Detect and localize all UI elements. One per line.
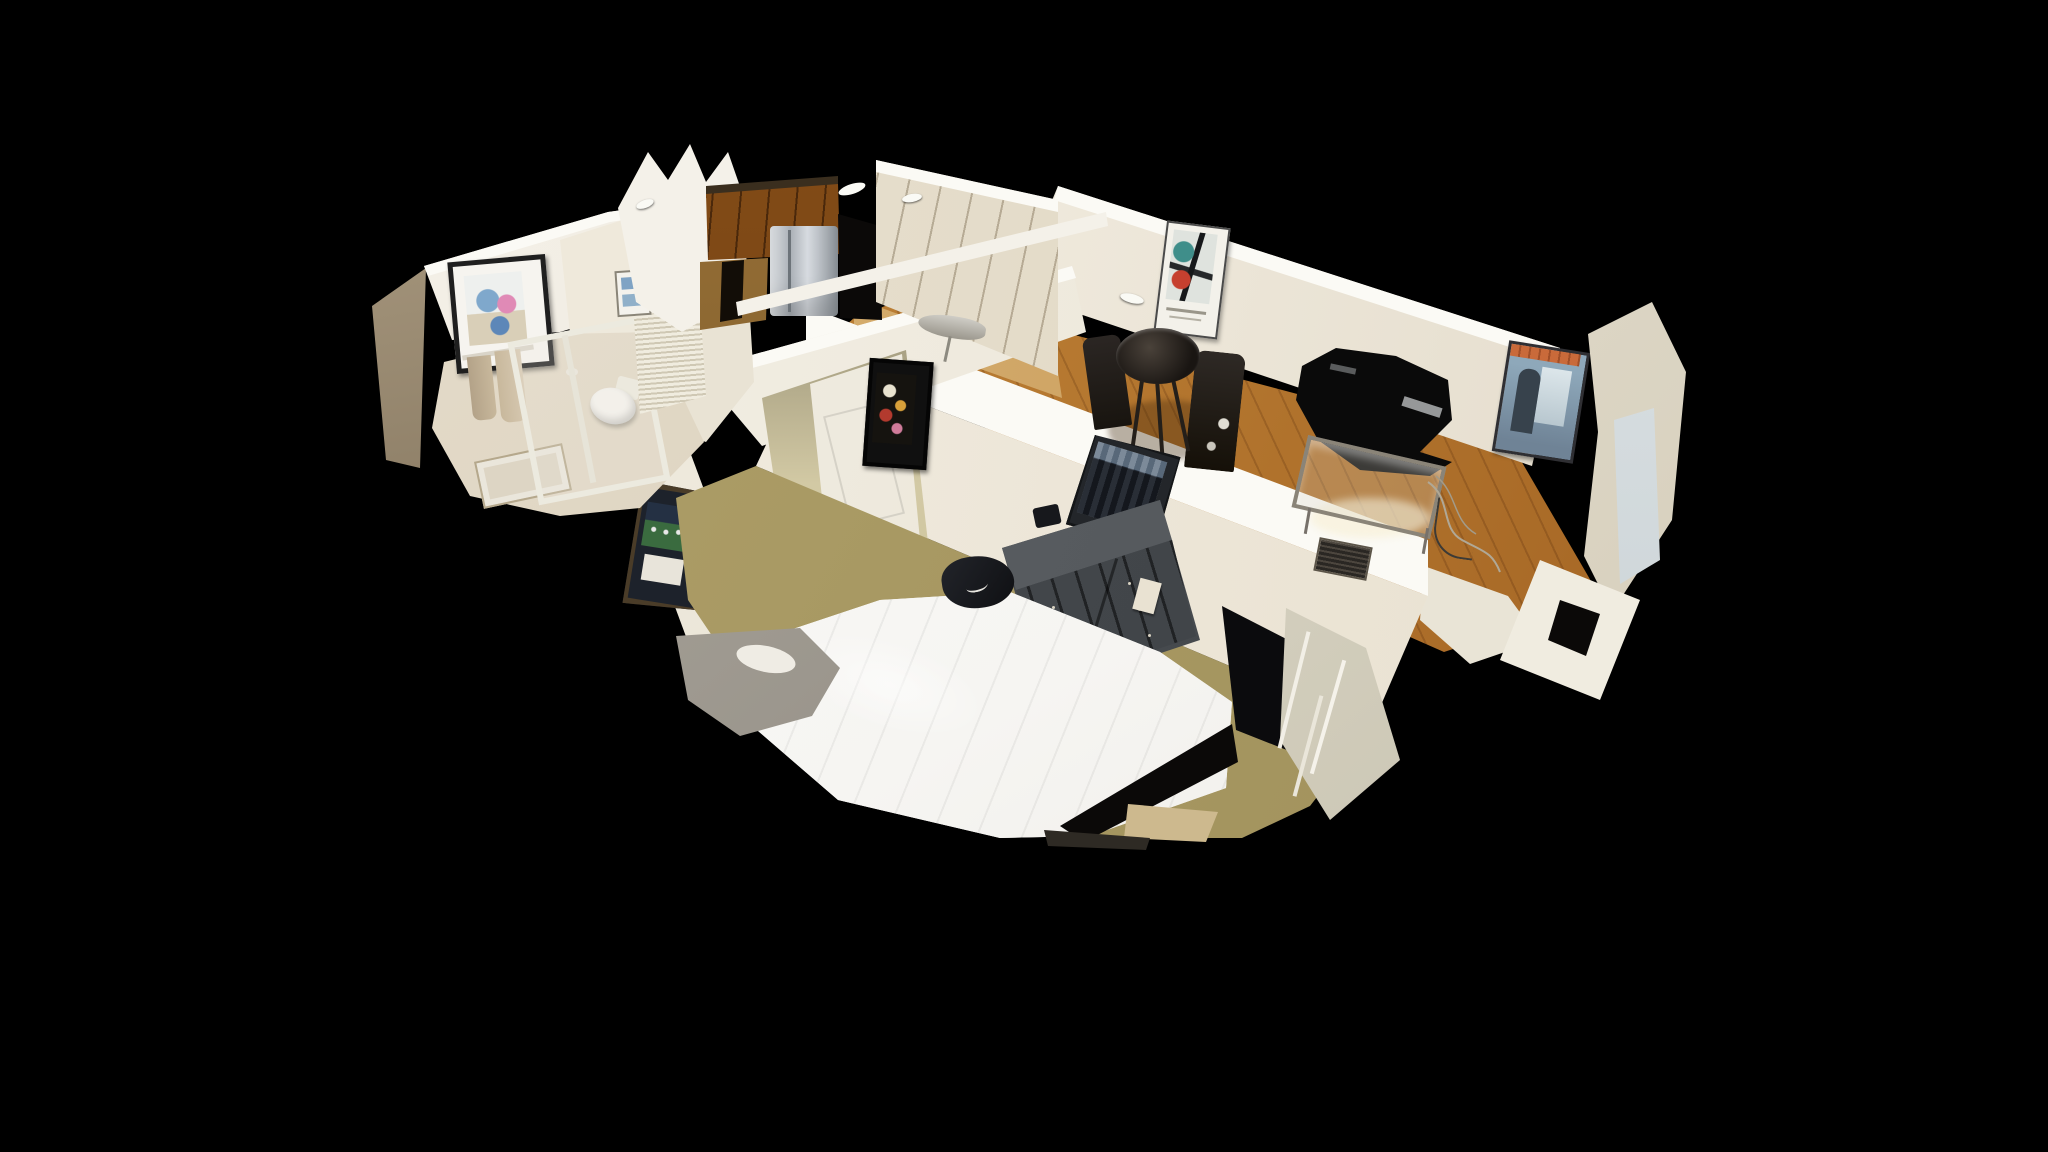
jazz-poster-figure	[1510, 367, 1542, 434]
abstract-art-caption2	[1169, 316, 1201, 322]
bathroom-watercolor-content	[464, 271, 528, 346]
dresser-top	[0, 0, 2048, 1152]
jazz-poster	[1492, 340, 1591, 463]
dining-table	[1116, 328, 1200, 384]
wall-wires	[1422, 468, 1512, 578]
dresser-drawer-pull	[1128, 582, 1131, 585]
dollhouse-viewport[interactable]	[0, 0, 2048, 1152]
dresser-drawer-pull	[1148, 634, 1151, 637]
abstract-art-shapes	[1165, 229, 1217, 304]
flower-art-blooms	[872, 372, 917, 445]
flower-art	[862, 358, 933, 470]
abstract-art-poster	[1153, 221, 1230, 340]
jazz-poster-title-band	[1510, 344, 1581, 367]
dresser-drawer-pull	[1052, 606, 1055, 609]
sports-frame-plaque	[641, 554, 685, 586]
scan-curl-artifact	[837, 180, 867, 198]
abstract-art-caption	[1166, 307, 1206, 315]
